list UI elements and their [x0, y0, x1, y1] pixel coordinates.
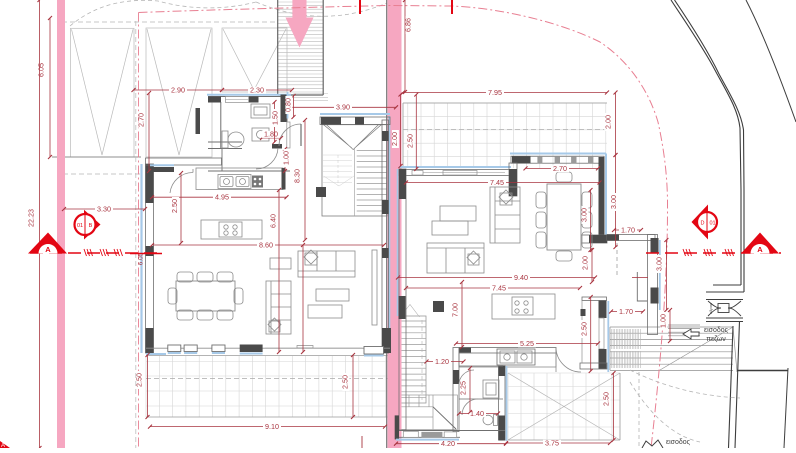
svg-text:8.30: 8.30 — [292, 169, 301, 183]
svg-text:A: A — [757, 245, 763, 254]
svg-text:D: D — [701, 221, 705, 227]
svg-text:2.50: 2.50 — [134, 373, 143, 387]
svg-text:6.86: 6.86 — [403, 18, 412, 32]
svg-text:4.20: 4.20 — [441, 439, 455, 448]
svg-text:3.00: 3.00 — [654, 257, 663, 271]
svg-text:1.00: 1.00 — [658, 314, 667, 328]
svg-text:4.95: 4.95 — [215, 193, 229, 202]
svg-text:3.00: 3.00 — [579, 208, 588, 222]
svg-text:3.90: 3.90 — [336, 103, 350, 112]
svg-text:2.50: 2.50 — [601, 392, 610, 406]
svg-text:2.00: 2.00 — [390, 132, 399, 146]
svg-text:8.60: 8.60 — [259, 240, 273, 249]
svg-text:3.75: 3.75 — [545, 438, 559, 447]
svg-text:9.10: 9.10 — [265, 422, 279, 431]
svg-text:22.23: 22.23 — [26, 209, 35, 227]
svg-text:9.40: 9.40 — [514, 273, 528, 282]
svg-text:01: 01 — [77, 223, 83, 229]
svg-text:6.05: 6.05 — [36, 63, 45, 77]
svg-text:7.45: 7.45 — [492, 283, 506, 292]
svg-text:0.80: 0.80 — [283, 98, 292, 112]
svg-text:3.30: 3.30 — [97, 204, 111, 213]
svg-text:1.50: 1.50 — [270, 111, 279, 125]
svg-text:2.25: 2.25 — [458, 381, 467, 395]
svg-text:5.25: 5.25 — [520, 339, 534, 348]
svg-text:1.70: 1.70 — [621, 225, 635, 234]
svg-text:πεζων: πεζων — [706, 336, 726, 343]
svg-text:7.45: 7.45 — [490, 178, 504, 187]
svg-text:7.95: 7.95 — [488, 88, 502, 97]
svg-text:2.50: 2.50 — [340, 375, 349, 389]
svg-text:2.70: 2.70 — [553, 164, 567, 173]
svg-text:2.90: 2.90 — [171, 85, 185, 94]
svg-text:εισοδος: εισοδος — [704, 327, 729, 334]
svg-text:2.50: 2.50 — [170, 199, 179, 213]
svg-text:2.70: 2.70 — [136, 113, 145, 127]
svg-text:2.50: 2.50 — [579, 322, 588, 336]
svg-text:A: A — [1, 443, 5, 448]
svg-text:6.40: 6.40 — [268, 214, 277, 228]
svg-text:7.00: 7.00 — [450, 303, 459, 317]
svg-text:2.30: 2.30 — [250, 85, 264, 94]
svg-text:υδρορ: υδρορ — [708, 302, 713, 314]
svg-text:1.20: 1.20 — [435, 357, 449, 366]
svg-text:1.80: 1.80 — [264, 130, 278, 139]
svg-text:1.00: 1.00 — [281, 151, 290, 165]
svg-text:01: 01 — [709, 221, 715, 227]
svg-text:2.00: 2.00 — [580, 256, 589, 270]
svg-text:1.70: 1.70 — [619, 307, 633, 316]
svg-text:εισοδος: εισοδος — [666, 439, 691, 446]
svg-text:2.00: 2.00 — [603, 115, 612, 129]
svg-text:2.50: 2.50 — [405, 134, 414, 148]
svg-text:A: A — [45, 245, 51, 254]
svg-text:B: B — [89, 223, 93, 229]
svg-text:3.00: 3.00 — [609, 195, 618, 209]
